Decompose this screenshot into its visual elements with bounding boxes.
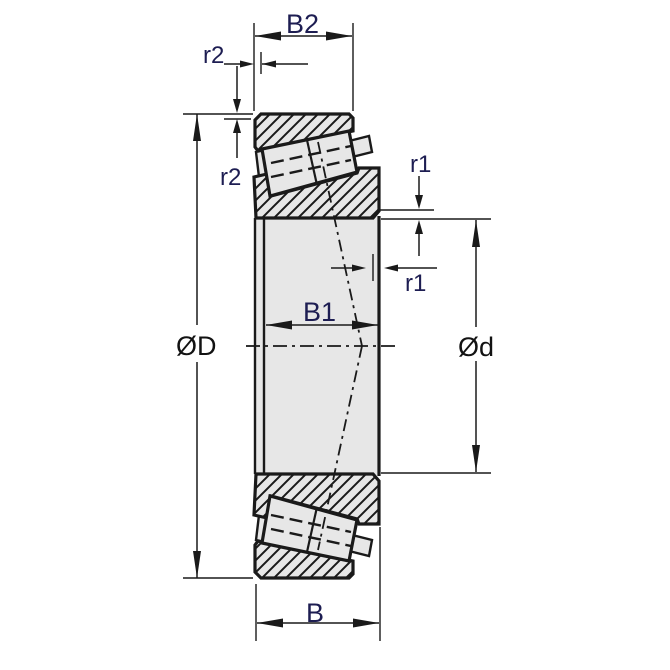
r2-horizontal-arrow-right xyxy=(262,61,276,68)
b-arrow-left xyxy=(257,619,283,628)
bearing-drawing-canvas: B2 r2 r2 ØD Ød xyxy=(0,0,670,670)
dim-label-outer-diameter: ØD xyxy=(176,331,217,361)
r1-horizontal-arrow-left xyxy=(384,265,398,272)
bearing-dimension-diagram: B2 r2 r2 ØD Ød xyxy=(0,0,670,670)
dim-bore-diameter: Ød xyxy=(381,219,494,473)
dim-label-b2: B2 xyxy=(286,9,319,39)
dim-label-b1: B1 xyxy=(303,297,336,327)
r1-vertical-arrow-down xyxy=(415,195,423,209)
dim-label-r1-vertical: r1 xyxy=(410,151,431,178)
bearing-top-half xyxy=(254,114,379,218)
dim-label-bore-diameter: Ød xyxy=(458,332,494,362)
dim-label-r2-horizontal: r2 xyxy=(203,42,224,69)
dim-label-b: B xyxy=(306,598,324,628)
r2-vertical-arrow-down xyxy=(233,99,241,113)
r2-horizontal-arrow-left xyxy=(240,61,254,68)
od-arrow-up xyxy=(193,114,201,141)
dim-b2: B2 xyxy=(254,9,353,111)
dim-r2-vertical: r2 xyxy=(220,66,251,191)
r2-vertical-arrow-up xyxy=(233,119,241,133)
od-arrow-down xyxy=(193,551,201,578)
b2-arrow-left xyxy=(255,32,281,41)
r1-vertical-arrow-up xyxy=(415,220,423,234)
d-arrow-up xyxy=(472,220,480,247)
dim-r2-horizontal: r2 xyxy=(203,42,308,74)
d-arrow-down xyxy=(472,445,480,472)
b-arrow-right xyxy=(353,619,379,628)
dim-r1-vertical: r1 xyxy=(378,151,434,256)
dim-outer-diameter: ØD xyxy=(176,114,253,578)
b2-arrow-right xyxy=(326,32,352,41)
bearing-bottom-half xyxy=(254,474,379,578)
dim-label-r2-vertical: r2 xyxy=(220,164,241,191)
dim-label-r1-horizontal: r1 xyxy=(405,270,426,297)
